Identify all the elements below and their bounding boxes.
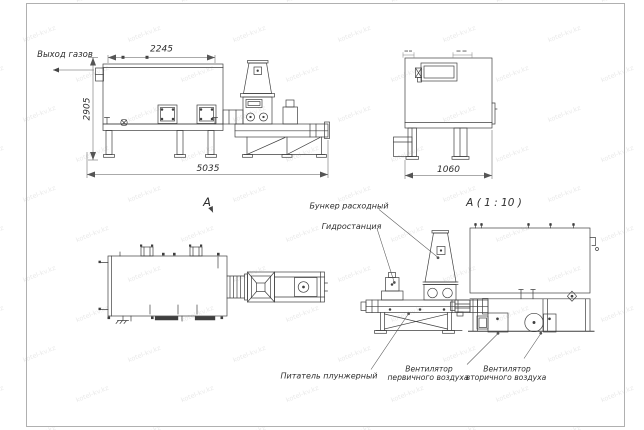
ash-box bbox=[394, 137, 413, 157]
hopper-chimney bbox=[244, 63, 272, 94]
inspection-panel bbox=[158, 105, 177, 124]
fan-leader-lines bbox=[467, 332, 542, 364]
section-a-label: А bbox=[202, 195, 211, 209]
boiler-body bbox=[103, 64, 223, 124]
secondary-air-fan bbox=[525, 313, 556, 332]
top-anchor-marks bbox=[474, 223, 574, 228]
conveyor-truss bbox=[243, 137, 327, 157]
main-view-dimensions bbox=[53, 55, 328, 178]
dim-2245-label: 2245 bbox=[150, 45, 173, 55]
detail-view-a bbox=[451, 223, 599, 332]
plan-view bbox=[99, 245, 328, 324]
inspection-panel bbox=[197, 105, 216, 124]
side-hook bbox=[590, 238, 596, 246]
sheet-frame-border bbox=[27, 4, 625, 427]
boiler-body-side bbox=[405, 58, 492, 128]
drawing-sheet: kotel-kv.kzkotel-kv.kzkotel-kv.kzkotel-k… bbox=[0, 0, 644, 430]
furnace-rear bbox=[424, 285, 456, 301]
primary-air-fan bbox=[477, 313, 508, 332]
side-channel bbox=[492, 103, 497, 124]
detail-base-frame bbox=[469, 290, 595, 332]
boiler-rear-panel bbox=[470, 228, 590, 293]
feed-hopper bbox=[423, 231, 458, 285]
feeder-plan bbox=[275, 272, 328, 302]
feeder-conveyor bbox=[235, 122, 330, 139]
plunger-feeder-label: Питатель плунжерный bbox=[281, 372, 378, 381]
feeder-truss bbox=[375, 313, 463, 334]
secondary-fan-label-line2: вторичного воздуха bbox=[466, 373, 547, 382]
hydraulic-unit bbox=[283, 100, 298, 124]
dim-5035-label: 5035 bbox=[197, 164, 220, 174]
hopper-plan bbox=[248, 272, 275, 302]
bellows-connector bbox=[227, 274, 248, 300]
feed-hopper-label: Бункер расходный bbox=[309, 202, 388, 211]
connecting-duct bbox=[223, 110, 243, 124]
feeder-tube-stub bbox=[451, 300, 471, 316]
dim-1060-label: 1060 bbox=[437, 165, 460, 175]
micro-dimension bbox=[403, 50, 472, 57]
cad-drawing: Выход газов 2245 2905 5035 1060 А А ( 1 … bbox=[0, 0, 644, 430]
feeder-elevation-view bbox=[361, 231, 488, 334]
side-hook-pin bbox=[596, 248, 599, 251]
furnace-and-hopper bbox=[241, 61, 275, 125]
plan-protrusion bbox=[141, 247, 153, 256]
gas-outlet-flange bbox=[96, 68, 104, 81]
plan-protrusion bbox=[190, 247, 202, 256]
gas-outlet-label: Выход газов bbox=[37, 50, 93, 60]
dim-2905-label: 2905 bbox=[83, 97, 93, 120]
top-hatch bbox=[416, 63, 458, 82]
ground-symbol bbox=[116, 316, 129, 324]
hydraulic-station-label: Гидростанция bbox=[322, 222, 382, 231]
main-elevation-view bbox=[96, 56, 330, 158]
boiler-body-plan bbox=[108, 256, 227, 316]
valve-symbol bbox=[121, 119, 127, 125]
detail-a-title: А ( 1 : 10 ) bbox=[465, 197, 522, 209]
primary-fan-label-line2: первичного воздуха bbox=[387, 373, 468, 382]
side-view bbox=[394, 50, 498, 159]
side-view-legs bbox=[406, 128, 469, 159]
